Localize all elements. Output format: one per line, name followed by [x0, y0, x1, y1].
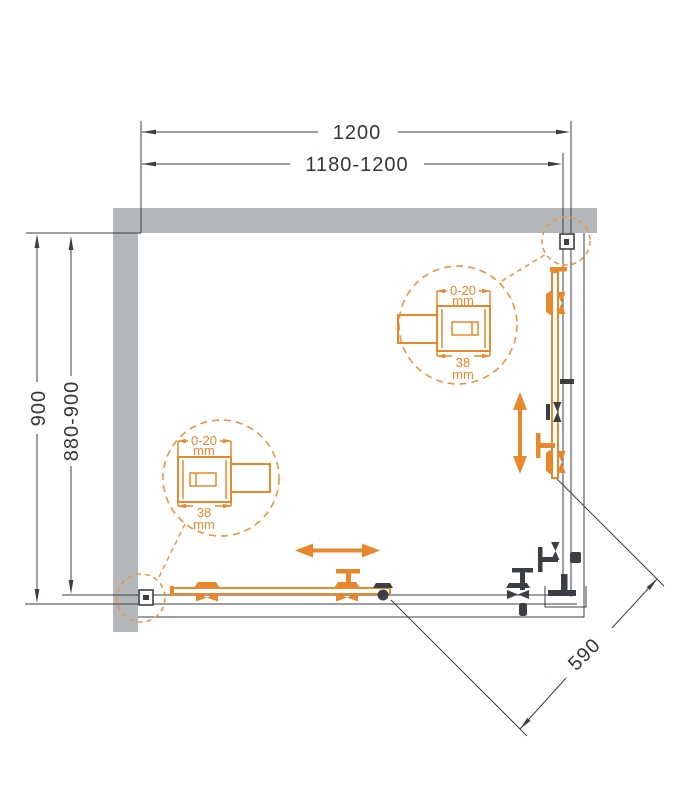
- detail-callout-top-right: 0-20 mm 38 mm: [398, 266, 517, 384]
- dim-depth-total-label: 900: [28, 390, 50, 426]
- slide-direction-arrow-horizontal-icon: [295, 544, 380, 558]
- sliding-door-bottom-second: [506, 568, 533, 616]
- wall-profile-bottom-left: [139, 590, 153, 605]
- dimension-width-adjustable: 1180-1200: [142, 154, 562, 176]
- wall-top: [113, 208, 597, 233]
- callout-bl-width-unit: mm: [193, 517, 215, 532]
- corner-assembly: [545, 574, 586, 607]
- right-rail-lines: [560, 121, 574, 597]
- wall-left: [113, 208, 138, 632]
- bottom-rail-lines: [25, 595, 577, 604]
- callout-bl-range-unit: mm: [193, 443, 215, 458]
- detail-callout-bottom-left: 0-20 mm 38 mm: [163, 420, 279, 536]
- dim-entry-diagonal-label: 590: [564, 634, 605, 675]
- dim-width-total-label: 1200: [333, 122, 382, 144]
- technical-drawing-canvas: 1200 1180-1200 900 880-900 590: [0, 0, 686, 800]
- sliding-door-right-second: [538, 542, 581, 572]
- callout-tr-width-unit: mm: [452, 367, 474, 382]
- callout-tr-range-unit: mm: [452, 293, 474, 308]
- sliding-door-bottom: [170, 569, 393, 602]
- dimension-entry-diagonal: 590: [391, 479, 664, 736]
- dim-width-adjustable-label: 1180-1200: [305, 154, 408, 176]
- tray-outline: [138, 233, 584, 617]
- slide-direction-arrow-vertical-icon: [513, 392, 527, 474]
- sliding-door-right: [536, 267, 567, 478]
- wall-profile-top-right: [560, 234, 574, 249]
- dim-depth-adjustable-label: 880-900: [61, 381, 83, 461]
- dimension-depth-adjustable: 880-900: [61, 236, 83, 594]
